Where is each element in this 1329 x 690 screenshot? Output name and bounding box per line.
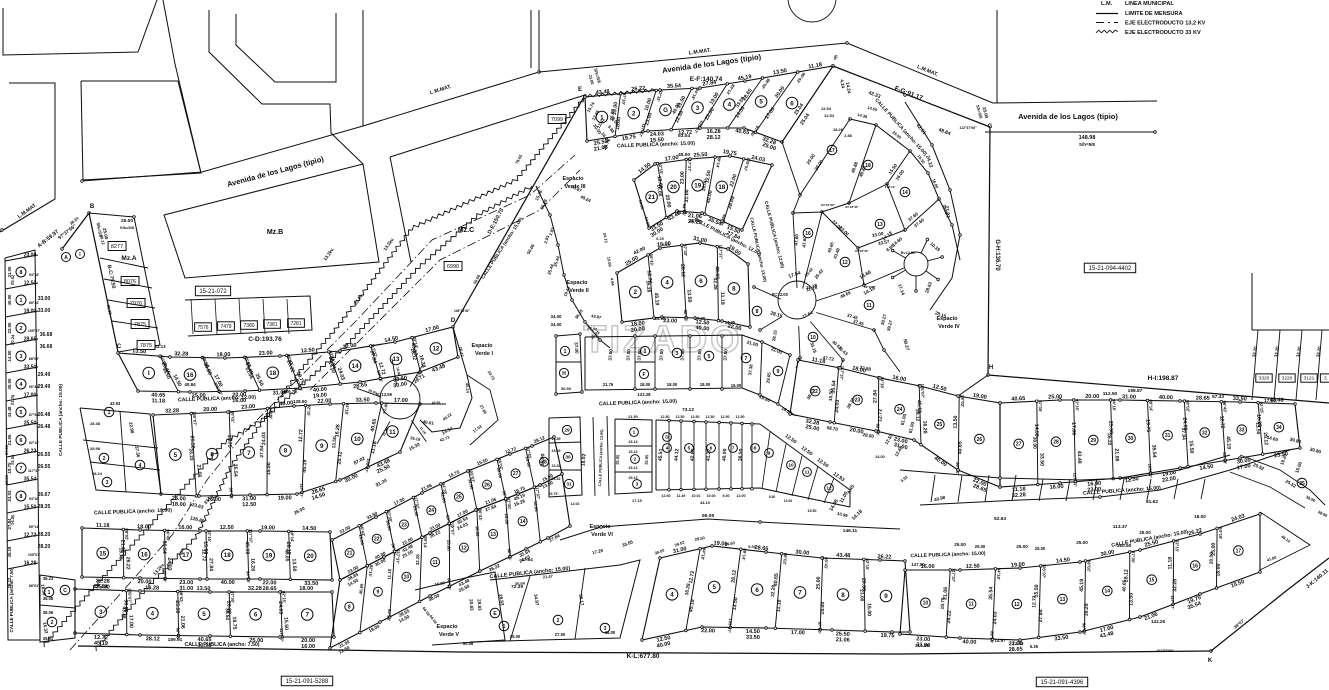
svg-text:12.72: 12.72 [298, 429, 305, 442]
svg-text:27.84: 27.84 [873, 390, 879, 403]
svg-text:17.00: 17.00 [791, 630, 805, 636]
svg-text:52.63: 52.63 [994, 516, 1006, 522]
svg-text:12.72: 12.72 [677, 210, 688, 215]
svg-text:8: 8 [754, 446, 757, 452]
svg-text:18.00: 18.00 [667, 382, 678, 387]
svg-text:94°18'43": 94°18'43" [845, 205, 859, 209]
svg-text:31: 31 [1165, 433, 1171, 439]
svg-text:20: 20 [307, 553, 314, 560]
svg-text:18.00: 18.00 [216, 352, 230, 358]
svg-text:45.14: 45.14 [465, 383, 471, 394]
svg-text:13.50: 13.50 [331, 436, 338, 449]
svg-text:13: 13 [393, 356, 400, 363]
svg-text:1: 1 [108, 410, 111, 416]
svg-text:18: 18 [718, 184, 725, 191]
svg-text:147.00: 147.00 [911, 562, 925, 567]
svg-text:19: 19 [265, 552, 272, 559]
svg-text:35.00: 35.00 [510, 634, 521, 639]
svg-text:13.50: 13.50 [196, 586, 210, 592]
svg-text:28.24: 28.24 [92, 471, 103, 476]
svg-text:87°30': 87°30' [1222, 452, 1228, 464]
svg-text:15.50: 15.50 [10, 454, 16, 466]
svg-text:7: 7 [305, 612, 309, 619]
svg-text:3121: 3121 [1304, 376, 1315, 382]
svg-text:26.22: 26.22 [877, 554, 891, 561]
svg-text:43.93: 43.93 [110, 401, 121, 406]
svg-text:21.06: 21.06 [1113, 448, 1119, 461]
svg-text:3: 3 [20, 354, 23, 360]
svg-text:40.65: 40.65 [957, 441, 963, 454]
svg-text:7: 7 [247, 450, 251, 457]
svg-text:7099: 7099 [551, 117, 563, 123]
svg-text:15: 15 [99, 550, 106, 557]
svg-text:36.08: 36.08 [43, 596, 54, 601]
svg-text:24.03: 24.03 [166, 557, 172, 570]
svg-text:23.00: 23.00 [858, 589, 864, 601]
svg-text:7576: 7576 [197, 325, 208, 331]
svg-text:24: 24 [429, 508, 435, 514]
svg-text:21.06: 21.06 [7, 434, 12, 446]
svg-text:D: D [665, 435, 669, 441]
svg-text:13.50: 13.50 [291, 558, 297, 571]
svg-text:24.03: 24.03 [834, 399, 841, 413]
svg-text:5: 5 [174, 452, 178, 459]
svg-text:26.67: 26.67 [38, 492, 51, 498]
svg-text:9.30: 9.30 [769, 495, 776, 499]
svg-text:87°30': 87°30' [1131, 551, 1136, 563]
svg-text:17.00: 17.00 [394, 398, 408, 404]
svg-text:33.50: 33.50 [1233, 396, 1247, 402]
svg-text:73.12: 73.12 [682, 407, 694, 413]
svg-text:13: 13 [877, 222, 883, 228]
svg-text:16.28: 16.28 [249, 558, 255, 571]
svg-text:25.50: 25.50 [24, 421, 37, 427]
svg-text:10: 10 [354, 436, 361, 443]
svg-text:21.78: 21.78 [10, 394, 16, 406]
svg-text:16.28: 16.28 [644, 280, 651, 293]
svg-text:2.88: 2.88 [844, 134, 851, 138]
svg-text:10: 10 [404, 575, 410, 581]
svg-text:20.24: 20.24 [10, 334, 16, 346]
svg-text:Espacio: Espacio [436, 624, 458, 630]
svg-text:88°02': 88°02' [29, 357, 39, 361]
svg-text:16: 16 [1192, 563, 1198, 569]
svg-text:84°18'40": 84°18'40" [821, 203, 835, 207]
svg-text:35.91: 35.91 [43, 636, 54, 641]
svg-text:8: 8 [732, 286, 736, 293]
svg-text:5: 5 [712, 584, 716, 591]
svg-text:7: 7 [745, 356, 748, 362]
svg-text:57.43: 57.43 [1212, 394, 1224, 400]
svg-text:Espacio: Espacio [562, 176, 584, 182]
svg-text:12.72: 12.72 [200, 549, 206, 561]
svg-text:24.03: 24.03 [277, 601, 283, 614]
svg-text:25.00: 25.00 [446, 540, 451, 551]
svg-text:12.50: 12.50 [220, 525, 234, 531]
svg-text:2: 2 [634, 457, 637, 463]
svg-text:45.19: 45.19 [7, 546, 12, 558]
svg-text:35.54: 35.54 [224, 608, 230, 620]
svg-text:117°37': 117°37' [1170, 595, 1175, 609]
svg-text:37.00: 37.00 [659, 348, 665, 360]
svg-text:18.00: 18.00 [299, 586, 313, 592]
svg-text:S/h=5/8: S/h=5/8 [1079, 142, 1095, 147]
svg-text:20: 20 [670, 184, 677, 191]
svg-text:29.49: 29.49 [38, 372, 51, 378]
svg-text:40.00: 40.00 [962, 639, 976, 645]
svg-text:4: 4 [665, 280, 669, 287]
svg-text:26.22: 26.22 [187, 448, 194, 461]
svg-text:12.72: 12.72 [689, 218, 700, 223]
svg-text:146.11: 146.11 [843, 528, 858, 534]
svg-text:14.85: 14.85 [10, 514, 16, 526]
svg-text:6: 6 [20, 438, 23, 444]
svg-text:12: 12 [461, 545, 467, 551]
svg-text:12.50: 12.50 [691, 415, 700, 419]
svg-text:33.50: 33.50 [356, 397, 370, 403]
svg-text:126.78: 126.78 [283, 389, 297, 394]
svg-text:11.18: 11.18 [387, 568, 393, 579]
svg-text:87°30': 87°30' [817, 622, 822, 634]
svg-text:18.02: 18.02 [580, 453, 587, 466]
svg-text:8277: 8277 [111, 244, 123, 250]
svg-text:37.00: 37.00 [637, 348, 643, 360]
svg-text:18.00: 18.00 [475, 526, 481, 538]
svg-text:9: 9 [884, 593, 888, 600]
svg-text:105°07': 105°07' [28, 329, 40, 333]
svg-text:18.00: 18.00 [1049, 484, 1063, 491]
svg-text:88°02': 88°02' [29, 584, 39, 588]
svg-text:32.28: 32.28 [1172, 579, 1178, 592]
svg-text:37.00: 37.00 [723, 348, 729, 360]
svg-text:14: 14 [520, 519, 526, 525]
svg-text:13: 13 [490, 532, 496, 538]
svg-text:20.00: 20.00 [1085, 394, 1099, 400]
svg-text:H-I:198.87: H-I:198.87 [1148, 375, 1179, 382]
svg-text:12.02: 12.02 [571, 502, 580, 506]
svg-text:96°43': 96°43' [478, 509, 484, 521]
svg-text:40.00: 40.00 [7, 294, 12, 306]
svg-text:8: 8 [20, 494, 23, 500]
svg-text:21.06: 21.06 [836, 637, 850, 643]
svg-text:2: 2 [632, 110, 636, 117]
svg-text:45.19: 45.19 [1225, 436, 1232, 449]
svg-text:18.00: 18.00 [820, 601, 826, 614]
svg-text:22.00: 22.00 [317, 398, 331, 405]
svg-text:105°07': 105°07' [1147, 464, 1153, 479]
svg-text:26.22: 26.22 [125, 557, 131, 570]
svg-text:16.28: 16.28 [921, 420, 927, 433]
svg-text:LIMITE DE MENSURA: LIMITE DE MENSURA [1125, 11, 1183, 17]
svg-text:40.00: 40.00 [1159, 395, 1173, 401]
svg-text:117°37': 117°37' [718, 245, 723, 259]
svg-text:14.50: 14.50 [1033, 424, 1039, 437]
svg-text:87°30': 87°30' [683, 244, 689, 256]
svg-text:16.00: 16.00 [178, 525, 192, 531]
svg-text:94°18': 94°18' [246, 571, 251, 583]
svg-text:17: 17 [1236, 548, 1242, 554]
svg-text:5.35: 5.35 [1030, 644, 1039, 649]
svg-text:24.03: 24.03 [992, 611, 999, 624]
svg-text:28.65: 28.65 [1196, 395, 1210, 401]
svg-text:4: 4 [139, 463, 142, 469]
svg-text:6.25: 6.25 [662, 243, 669, 247]
svg-text:32: 32 [1202, 430, 1208, 436]
svg-text:94°18': 94°18' [1218, 527, 1223, 539]
svg-text:40.65: 40.65 [283, 549, 289, 562]
svg-text:110°16': 110°16' [885, 185, 896, 189]
svg-text:30.00: 30.00 [1031, 437, 1037, 449]
svg-text:R=12.50: R=12.50 [901, 251, 915, 255]
svg-text:117°37': 117°37' [299, 483, 305, 497]
svg-text:32.28: 32.28 [174, 351, 188, 357]
svg-text:92°15': 92°15' [1075, 399, 1080, 411]
svg-text:35.54: 35.54 [1150, 445, 1157, 458]
svg-text:3: 3 [696, 105, 700, 112]
svg-text:12.50: 12.50 [966, 564, 980, 570]
svg-text:10.01: 10.01 [692, 494, 701, 498]
svg-text:89°14': 89°14' [1148, 399, 1154, 411]
svg-text:37.00: 37.00 [680, 348, 686, 360]
svg-text:31: 31 [566, 482, 572, 488]
svg-text:16.00: 16.00 [207, 497, 221, 503]
svg-text:25.00: 25.00 [1139, 530, 1151, 535]
svg-text:43.48: 43.48 [7, 406, 12, 418]
svg-text:28.83: 28.83 [477, 599, 483, 611]
svg-text:26.48: 26.48 [38, 412, 51, 418]
svg-text:F: F [642, 372, 645, 378]
svg-text:H: H [989, 365, 993, 371]
svg-text:3: 3 [99, 609, 103, 616]
svg-text:2: 2 [20, 326, 23, 332]
svg-text:148.98: 148.98 [1079, 135, 1096, 141]
svg-text:28: 28 [541, 460, 547, 466]
svg-text:12.50: 12.50 [24, 281, 37, 287]
svg-text:1: 1 [48, 590, 51, 596]
svg-text:25.00: 25.00 [975, 544, 986, 549]
svg-text:26.22: 26.22 [946, 610, 953, 623]
svg-text:19.75: 19.75 [880, 633, 894, 639]
svg-text:146°23'40": 146°23'40" [454, 309, 470, 313]
svg-text:198.87: 198.87 [1128, 388, 1143, 394]
svg-text:94°18': 94°18' [996, 568, 1001, 580]
svg-text:F: F [834, 56, 838, 62]
svg-text:47.60: 47.60 [802, 235, 808, 247]
svg-text:16.28: 16.28 [24, 561, 37, 567]
svg-text:19.75: 19.75 [117, 548, 123, 560]
svg-text:23.14: 23.14 [629, 450, 638, 454]
svg-text:EJE ELECTRODUCTO 13,2 KV: EJE ELECTRODUCTO 13,2 KV [1125, 21, 1206, 27]
svg-text:94°18': 94°18' [29, 273, 39, 277]
svg-text:22: 22 [374, 537, 380, 543]
svg-text:Espacio: Espacio [471, 343, 493, 349]
svg-text:12.50: 12.50 [736, 415, 745, 419]
svg-text:11: 11 [866, 303, 872, 309]
svg-text:I: I [148, 370, 150, 377]
svg-text:15.50: 15.50 [266, 462, 272, 475]
svg-text:7381: 7381 [266, 322, 277, 328]
svg-text:17.00: 17.00 [24, 393, 37, 399]
svg-text:94°18': 94°18' [386, 609, 392, 621]
svg-text:33: 33 [1239, 428, 1245, 434]
svg-text:37.00: 37.00 [574, 342, 580, 354]
svg-text:27.84: 27.84 [259, 445, 265, 457]
svg-text:D: D [451, 318, 456, 324]
svg-text:2: 2 [103, 456, 106, 462]
svg-text:6: 6 [790, 100, 794, 107]
svg-text:7479: 7479 [220, 324, 231, 330]
svg-text:44.12: 44.12 [673, 448, 680, 461]
svg-text:15.50: 15.50 [828, 389, 835, 402]
svg-text:14.50: 14.50 [302, 526, 316, 532]
svg-text:33.00: 33.00 [38, 308, 51, 314]
svg-text:23.89: 23.89 [552, 449, 561, 453]
svg-text:120.50: 120.50 [1117, 543, 1132, 549]
svg-text:8: 8 [20, 270, 23, 276]
svg-text:45.19: 45.19 [302, 459, 309, 472]
svg-text:19.75: 19.75 [940, 597, 947, 610]
svg-text:34: 34 [1276, 425, 1282, 431]
svg-text:88°02': 88°02' [230, 411, 235, 423]
svg-text:88°02': 88°02' [782, 553, 788, 565]
svg-text:47.64: 47.64 [521, 557, 533, 562]
svg-text:22.00: 22.00 [701, 628, 715, 634]
svg-text:12.50: 12.50 [706, 415, 715, 419]
svg-text:21.06: 21.06 [195, 464, 202, 477]
svg-text:L.M.: L.M. [1101, 1, 1113, 7]
svg-text:21.50: 21.50 [628, 415, 638, 419]
svg-text:14.97: 14.97 [995, 638, 1007, 643]
svg-text:87°30': 87°30' [162, 570, 167, 582]
svg-text:9.30: 9.30 [723, 494, 730, 498]
svg-text:15-21-091-4396: 15-21-091-4396 [1041, 680, 1084, 686]
svg-text:9: 9 [320, 443, 324, 450]
svg-text:94°18': 94°18' [1111, 399, 1116, 411]
svg-text:6: 6 [699, 278, 703, 285]
svg-text:17.00: 17.00 [1070, 422, 1076, 435]
svg-text:25.00: 25.00 [121, 218, 133, 224]
svg-text:16: 16 [141, 551, 148, 558]
svg-text:43.48: 43.48 [836, 553, 850, 559]
svg-text:86°16'0": 86°16'0" [864, 285, 877, 289]
svg-text:35.54: 35.54 [988, 587, 995, 600]
svg-text:13.50: 13.50 [1254, 422, 1261, 435]
svg-text:20.83: 20.83 [469, 599, 475, 611]
svg-text:16.00: 16.00 [731, 383, 742, 388]
svg-text:105°07': 105°07' [28, 553, 40, 557]
svg-text:314.30: 314.30 [915, 643, 929, 648]
svg-text:50.58: 50.58 [463, 641, 474, 646]
svg-text:43.48: 43.48 [1076, 451, 1082, 464]
svg-text:7380: 7380 [243, 323, 254, 329]
svg-text:26.22: 26.22 [24, 449, 37, 455]
svg-text:15.50: 15.50 [808, 509, 817, 513]
svg-text:28.65: 28.65 [262, 586, 276, 592]
svg-text:16.28: 16.28 [1084, 603, 1090, 616]
svg-text:117°37': 117°37' [395, 549, 401, 563]
svg-text:Verde I: Verde I [475, 351, 494, 357]
svg-text:33.00: 33.00 [38, 296, 51, 302]
svg-text:27: 27 [1016, 442, 1022, 448]
svg-text:32.28: 32.28 [248, 586, 262, 592]
svg-text:96°43': 96°43' [1222, 400, 1228, 412]
svg-text:11.18: 11.18 [719, 292, 725, 305]
svg-text:27.84: 27.84 [1038, 609, 1044, 622]
svg-text:40.65: 40.65 [1011, 396, 1025, 403]
svg-text:27: 27 [513, 471, 519, 477]
svg-text:105°07': 105°07' [1041, 564, 1046, 578]
svg-text:26: 26 [977, 437, 983, 443]
svg-text:21: 21 [648, 194, 655, 201]
svg-text:88°02': 88°02' [179, 590, 184, 602]
svg-text:27.84: 27.84 [208, 558, 214, 571]
svg-text:32.28: 32.28 [712, 278, 718, 290]
svg-text:26.55: 26.55 [38, 464, 51, 470]
svg-text:27.84: 27.84 [1180, 428, 1187, 441]
svg-text:81.62: 81.62 [1146, 499, 1158, 505]
svg-text:7: 7 [20, 466, 23, 472]
svg-text:128.50: 128.50 [293, 399, 307, 404]
svg-text:Mz.B: Mz.B [267, 229, 283, 236]
svg-text:15.50: 15.50 [1034, 584, 1040, 597]
svg-text:37.00: 37.00 [608, 348, 614, 360]
svg-text:32.28: 32.28 [1012, 492, 1026, 499]
svg-text:35.54: 35.54 [24, 477, 37, 483]
svg-text:44.10: 44.10 [700, 500, 711, 505]
svg-text:12: 12 [432, 346, 439, 353]
svg-text:88°02': 88°02' [1185, 400, 1191, 412]
svg-text:9: 9 [377, 590, 380, 596]
svg-text:92°15': 92°15' [281, 591, 286, 603]
svg-text:43.48: 43.48 [121, 607, 127, 619]
svg-text:16: 16 [805, 231, 811, 237]
svg-text:15-21-091-5288: 15-21-091-5288 [286, 679, 329, 685]
svg-text:25.00: 25.00 [1048, 394, 1062, 401]
svg-text:12: 12 [1014, 602, 1020, 608]
svg-text:26.22: 26.22 [1106, 433, 1112, 446]
svg-text:Verde V: Verde V [439, 632, 460, 638]
svg-text:105°07': 105°07' [192, 411, 198, 426]
svg-text:C: C [117, 344, 122, 350]
svg-text:Espacio: Espacio [566, 280, 588, 286]
svg-text:40.65: 40.65 [1122, 579, 1128, 591]
svg-text:12.53: 12.53 [1013, 641, 1025, 646]
svg-text:87°30': 87°30' [1038, 400, 1043, 412]
svg-text:LINEA MUNICIPAL: LINEA MUNICIPAL [1125, 1, 1174, 7]
svg-text:15: 15 [1149, 578, 1155, 584]
svg-text:92°15': 92°15' [306, 404, 311, 416]
svg-text:8: 8 [841, 592, 845, 599]
svg-text:25.00: 25.00 [1076, 540, 1088, 545]
svg-text:15-21-072: 15-21-072 [199, 289, 227, 295]
svg-text:12.54: 12.54 [821, 106, 832, 111]
svg-text:25.50: 25.50 [189, 436, 196, 449]
svg-text:24.00: 24.00 [875, 455, 885, 459]
svg-text:3: 3 [636, 482, 639, 488]
svg-text:18.00: 18.00 [172, 502, 186, 509]
svg-text:14: 14 [1105, 589, 1111, 595]
svg-text:38.00: 38.00 [605, 630, 616, 635]
svg-text:22.00: 22.00 [7, 322, 12, 334]
svg-text:5: 5 [708, 354, 711, 360]
svg-text:11: 11 [389, 429, 396, 436]
svg-text:20.00: 20.00 [203, 407, 217, 414]
svg-text:C-D:193.76: C-D:193.76 [248, 336, 282, 343]
svg-text:113.37: 113.37 [1113, 524, 1128, 530]
svg-text:89°14': 89°14' [29, 525, 39, 529]
svg-text:23.00: 23.00 [241, 404, 255, 411]
svg-text:25.00: 25.00 [816, 576, 822, 589]
